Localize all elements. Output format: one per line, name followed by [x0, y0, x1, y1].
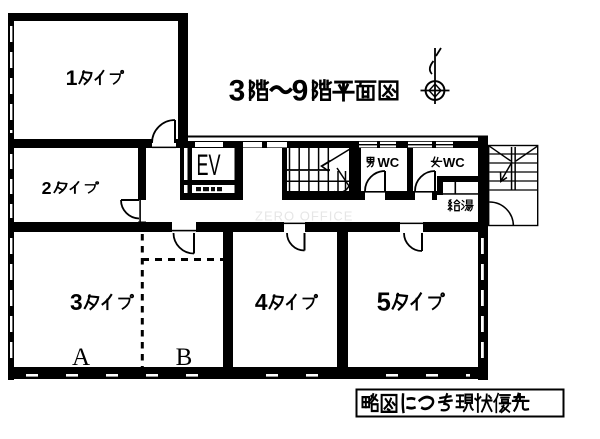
svg-text:WC: WC: [378, 155, 400, 170]
svg-text:4: 4: [255, 289, 268, 315]
svg-text:B: B: [176, 344, 193, 371]
svg-text:EV: EV: [197, 150, 221, 183]
svg-text:3: 3: [70, 289, 83, 315]
svg-text:2: 2: [42, 178, 52, 198]
svg-text:9: 9: [292, 75, 309, 108]
svg-text:5: 5: [377, 289, 391, 317]
svg-text:ZERO OFFICE: ZERO OFFICE: [255, 209, 353, 224]
svg-text:A: A: [72, 344, 90, 371]
svg-text:3: 3: [229, 75, 246, 108]
svg-text:1: 1: [66, 66, 78, 90]
svg-text:WC: WC: [443, 155, 465, 170]
